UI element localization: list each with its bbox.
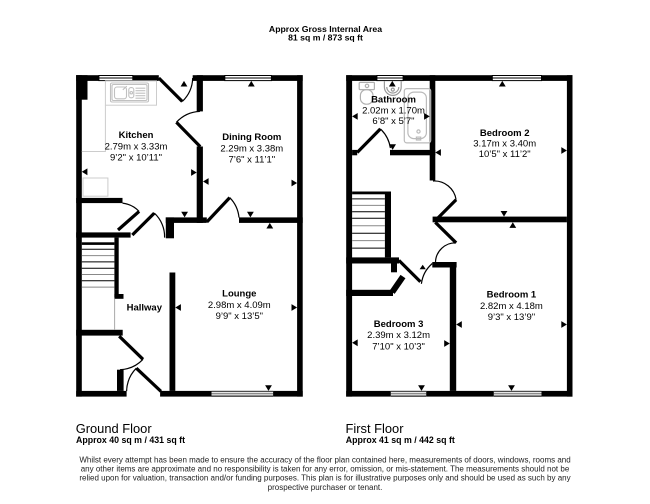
- svg-text:Approx 41 sq m / 442 sq ft: Approx 41 sq m / 442 sq ft: [346, 435, 455, 445]
- svg-text:9’3" x 13’9": 9’3" x 13’9": [488, 312, 535, 323]
- svg-text:2.39m x 3.12m: 2.39m x 3.12m: [367, 330, 430, 341]
- svg-text:9’9" x 13’5": 9’9" x 13’5": [216, 311, 263, 322]
- svg-text:any other items are approximat: any other items are approximate and no r…: [81, 465, 570, 474]
- svg-text:Whilst every attempt has been: Whilst every attempt has been made to en…: [79, 455, 570, 464]
- svg-text:Bedroom 2: Bedroom 2: [480, 128, 530, 139]
- svg-text:Bedroom 3: Bedroom 3: [374, 319, 424, 330]
- svg-text:7’10" x 10’3": 7’10" x 10’3": [372, 341, 425, 352]
- svg-text:Bedroom 1: Bedroom 1: [487, 290, 537, 301]
- svg-text:First Floor: First Floor: [346, 421, 405, 436]
- svg-text:2.29m x 3.38m: 2.29m x 3.38m: [220, 143, 283, 154]
- svg-text:Hallway: Hallway: [127, 303, 163, 314]
- svg-text:81 sq m / 873 sq ft: 81 sq m / 873 sq ft: [288, 33, 363, 43]
- svg-text:Bathroom: Bathroom: [371, 95, 416, 106]
- svg-text:relied upon for valuation, tra: relied upon for valuation, transaction a…: [79, 474, 570, 483]
- svg-text:3.17m x 3.40m: 3.17m x 3.40m: [473, 138, 536, 149]
- svg-text:Lounge: Lounge: [222, 289, 256, 300]
- svg-text:7’6" x 11’1": 7’6" x 11’1": [228, 155, 275, 166]
- svg-text:2.98m x 4.09m: 2.98m x 4.09m: [208, 300, 271, 311]
- svg-text:10’5" x 11’2": 10’5" x 11’2": [479, 149, 531, 160]
- svg-text:2.82m x 4.18m: 2.82m x 4.18m: [480, 301, 543, 312]
- svg-text:Kitchen: Kitchen: [119, 130, 154, 141]
- svg-text:9’2" x 10’11": 9’2" x 10’11": [110, 153, 162, 164]
- svg-text:prospective purchaser or tenan: prospective purchaser or tenant.: [268, 483, 383, 492]
- svg-text:2.02m x 1.70m: 2.02m x 1.70m: [362, 105, 425, 116]
- svg-text:Dining Room: Dining Room: [222, 132, 281, 143]
- svg-text:6’8" x 5’7": 6’8" x 5’7": [372, 116, 414, 127]
- svg-text:2.79m x 3.33m: 2.79m x 3.33m: [105, 141, 168, 152]
- svg-text:Ground Floor: Ground Floor: [76, 421, 153, 436]
- svg-text:Approx 40 sq m / 431 sq ft: Approx 40 sq m / 431 sq ft: [76, 435, 185, 445]
